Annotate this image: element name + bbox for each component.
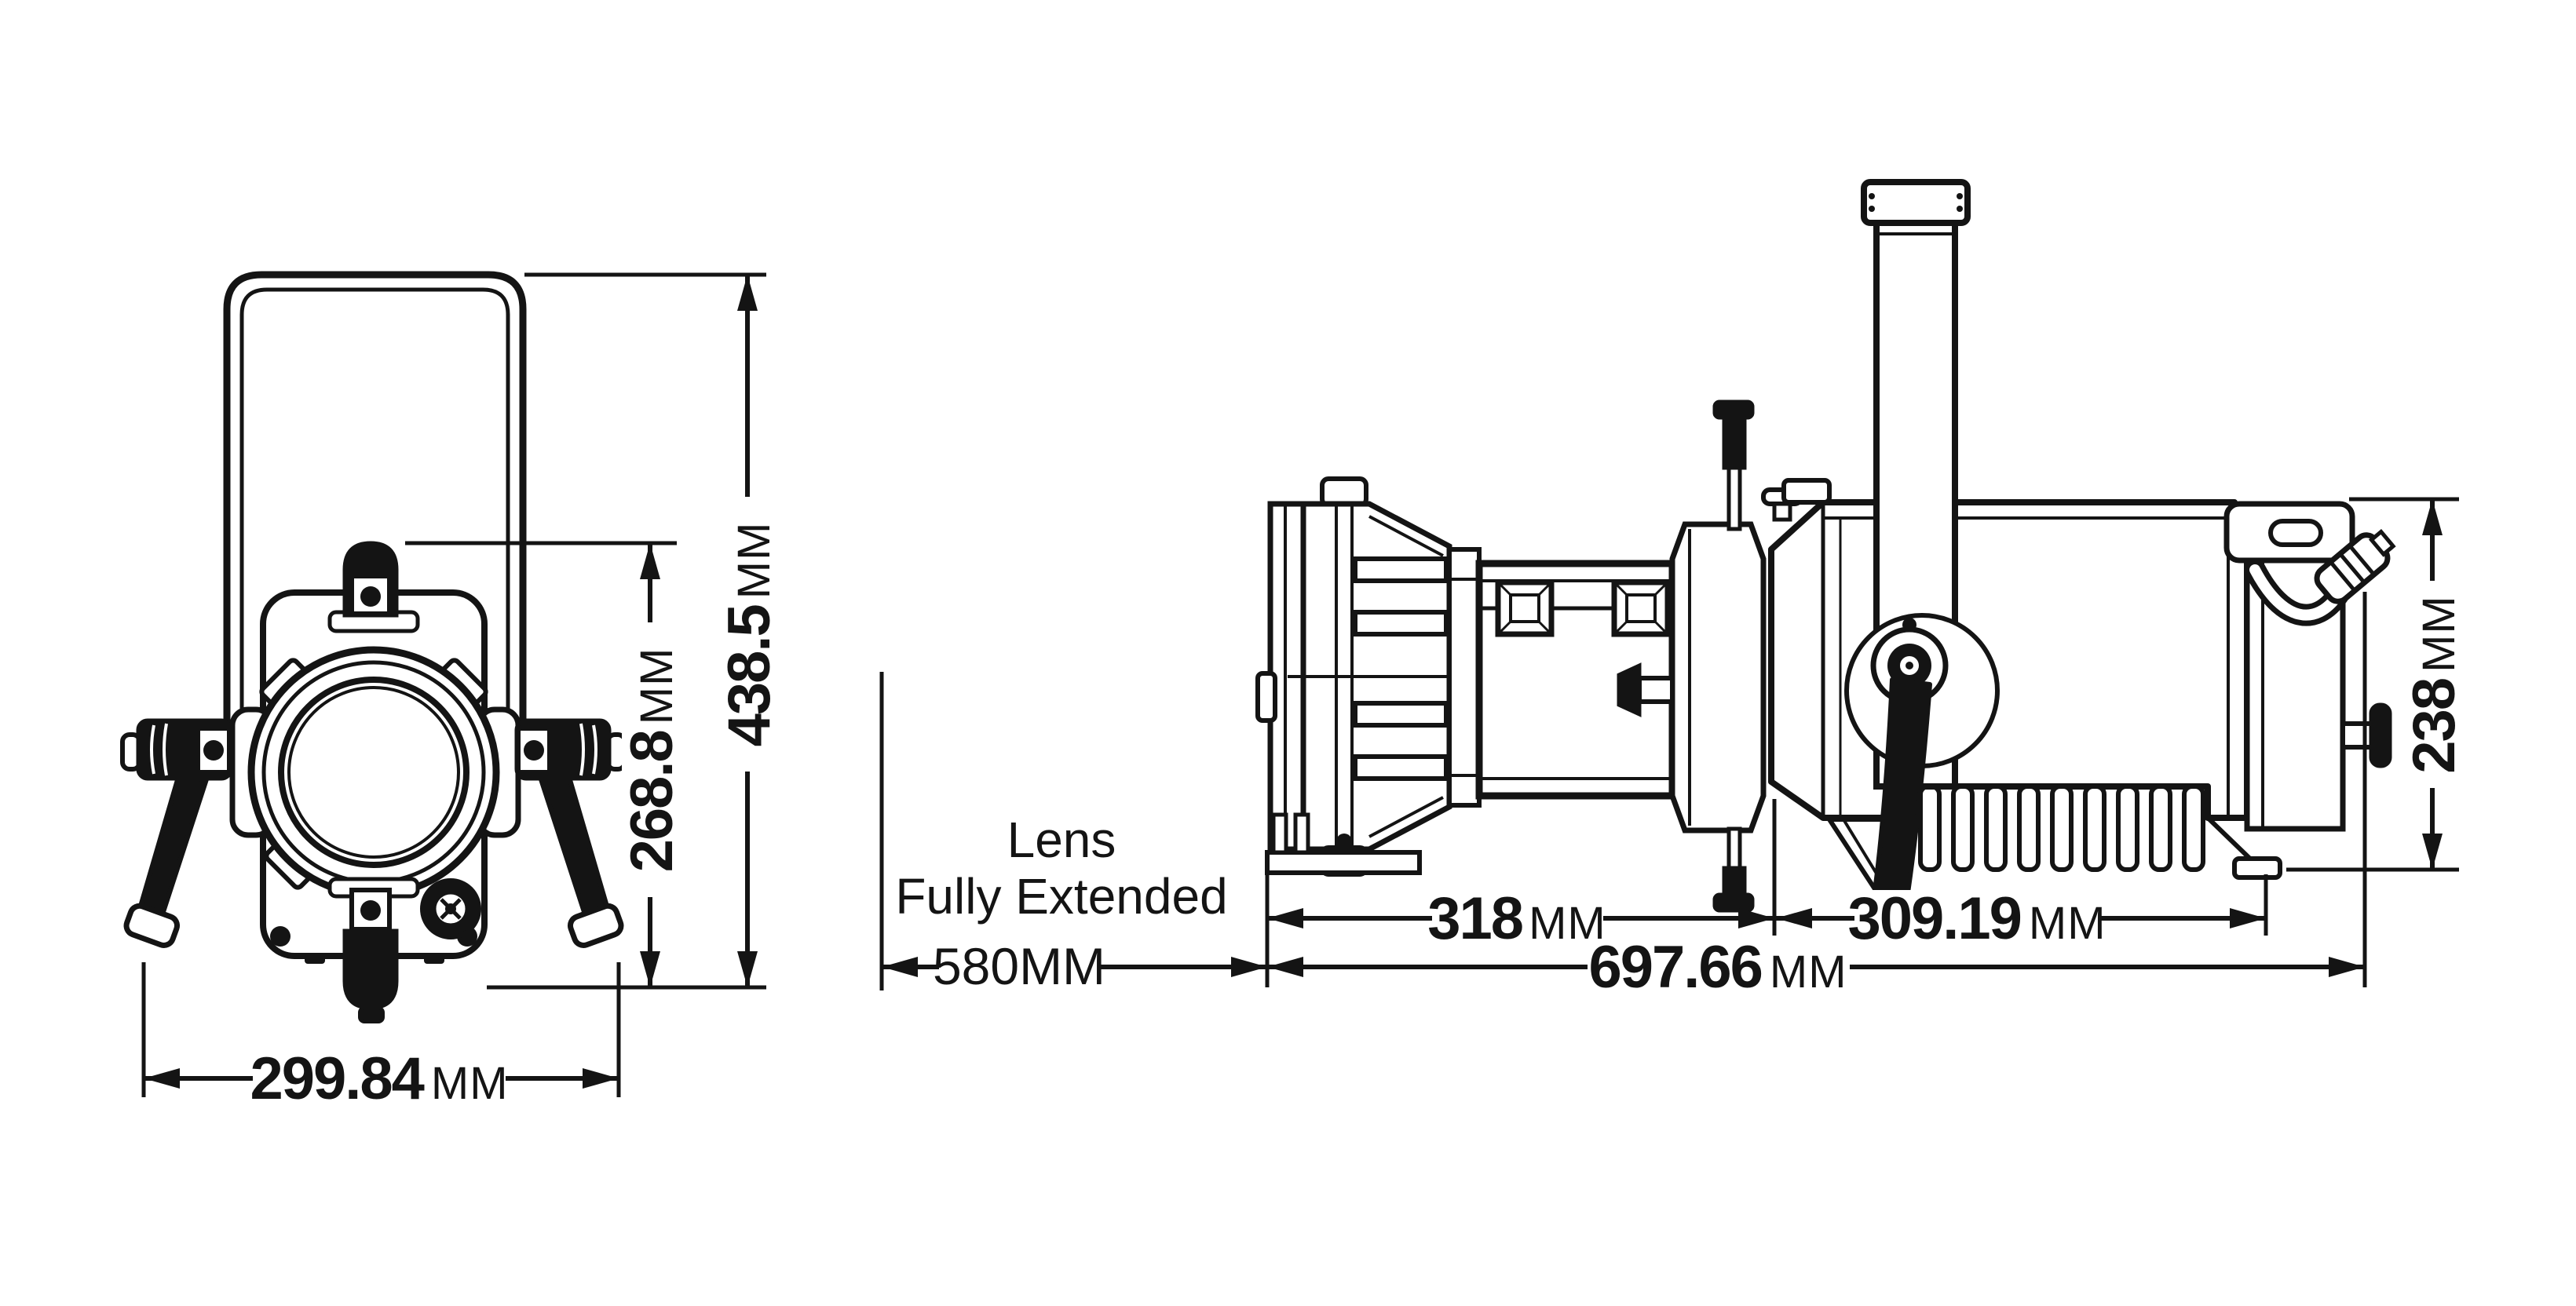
tube-collar	[1672, 524, 1763, 830]
yoke-arm-cap	[1864, 182, 1968, 223]
shutter-blade-bottom	[1715, 829, 1752, 910]
lens-glass	[281, 680, 466, 865]
tube-knob-1	[1498, 582, 1551, 634]
bottom-grip-stem	[360, 1008, 383, 1022]
dim-label-side-extended-length: 580MM	[933, 937, 1105, 995]
body-foot-tab	[424, 954, 444, 964]
front-view	[122, 275, 625, 1022]
body-screw	[270, 926, 290, 947]
rear-knob-cap	[2371, 705, 2390, 766]
top-screw-stem	[1774, 504, 1790, 520]
right-foot	[568, 903, 623, 948]
tube-knob-2	[1614, 582, 1668, 634]
fixture-dimension-drawing: 438.5MM 268.8MM 299.84MM	[0, 0, 2576, 1306]
gel-frame-hinge	[1258, 673, 1275, 720]
front-rail	[1267, 852, 1420, 873]
bottom-grip-screw	[360, 900, 381, 921]
body-top-tab	[1784, 480, 1829, 502]
left-leg	[140, 769, 206, 917]
side-view	[1258, 182, 2399, 938]
top-grip-screw	[360, 586, 381, 607]
note-line-2: Fully Extended	[895, 868, 1227, 925]
gel-slot	[1355, 757, 1446, 779]
bottom-grip	[345, 931, 396, 1008]
rear-knob-stem	[2343, 724, 2373, 747]
rear-bracket-slot	[2271, 521, 2321, 545]
pivot-screw	[1902, 618, 1916, 632]
thumbscrew-shaft	[1639, 678, 1672, 702]
gel-slot	[1355, 559, 1446, 581]
rear-foot	[2234, 859, 2280, 877]
lens-extended-note: Lens Fully Extended	[895, 812, 1227, 925]
shutter-blade-top	[1715, 402, 1752, 529]
right-leg	[542, 769, 608, 917]
gel-slot	[1355, 703, 1446, 725]
right-knob-screw	[524, 740, 544, 761]
tube-neck	[1449, 549, 1479, 805]
body-block	[1771, 502, 2247, 818]
clip-screw	[1336, 834, 1352, 849]
lens-lock-thumbscrew	[1619, 666, 1639, 714]
technical-drawing-page: 438.5MM 268.8MM 299.84MM	[0, 0, 2576, 1306]
note-line-1: Lens	[1007, 812, 1116, 868]
gel-slot	[1355, 612, 1446, 634]
left-foot	[124, 903, 180, 948]
left-knob-screw	[203, 740, 224, 761]
body-foot-tab	[305, 954, 325, 964]
heatsink	[1920, 786, 2203, 870]
